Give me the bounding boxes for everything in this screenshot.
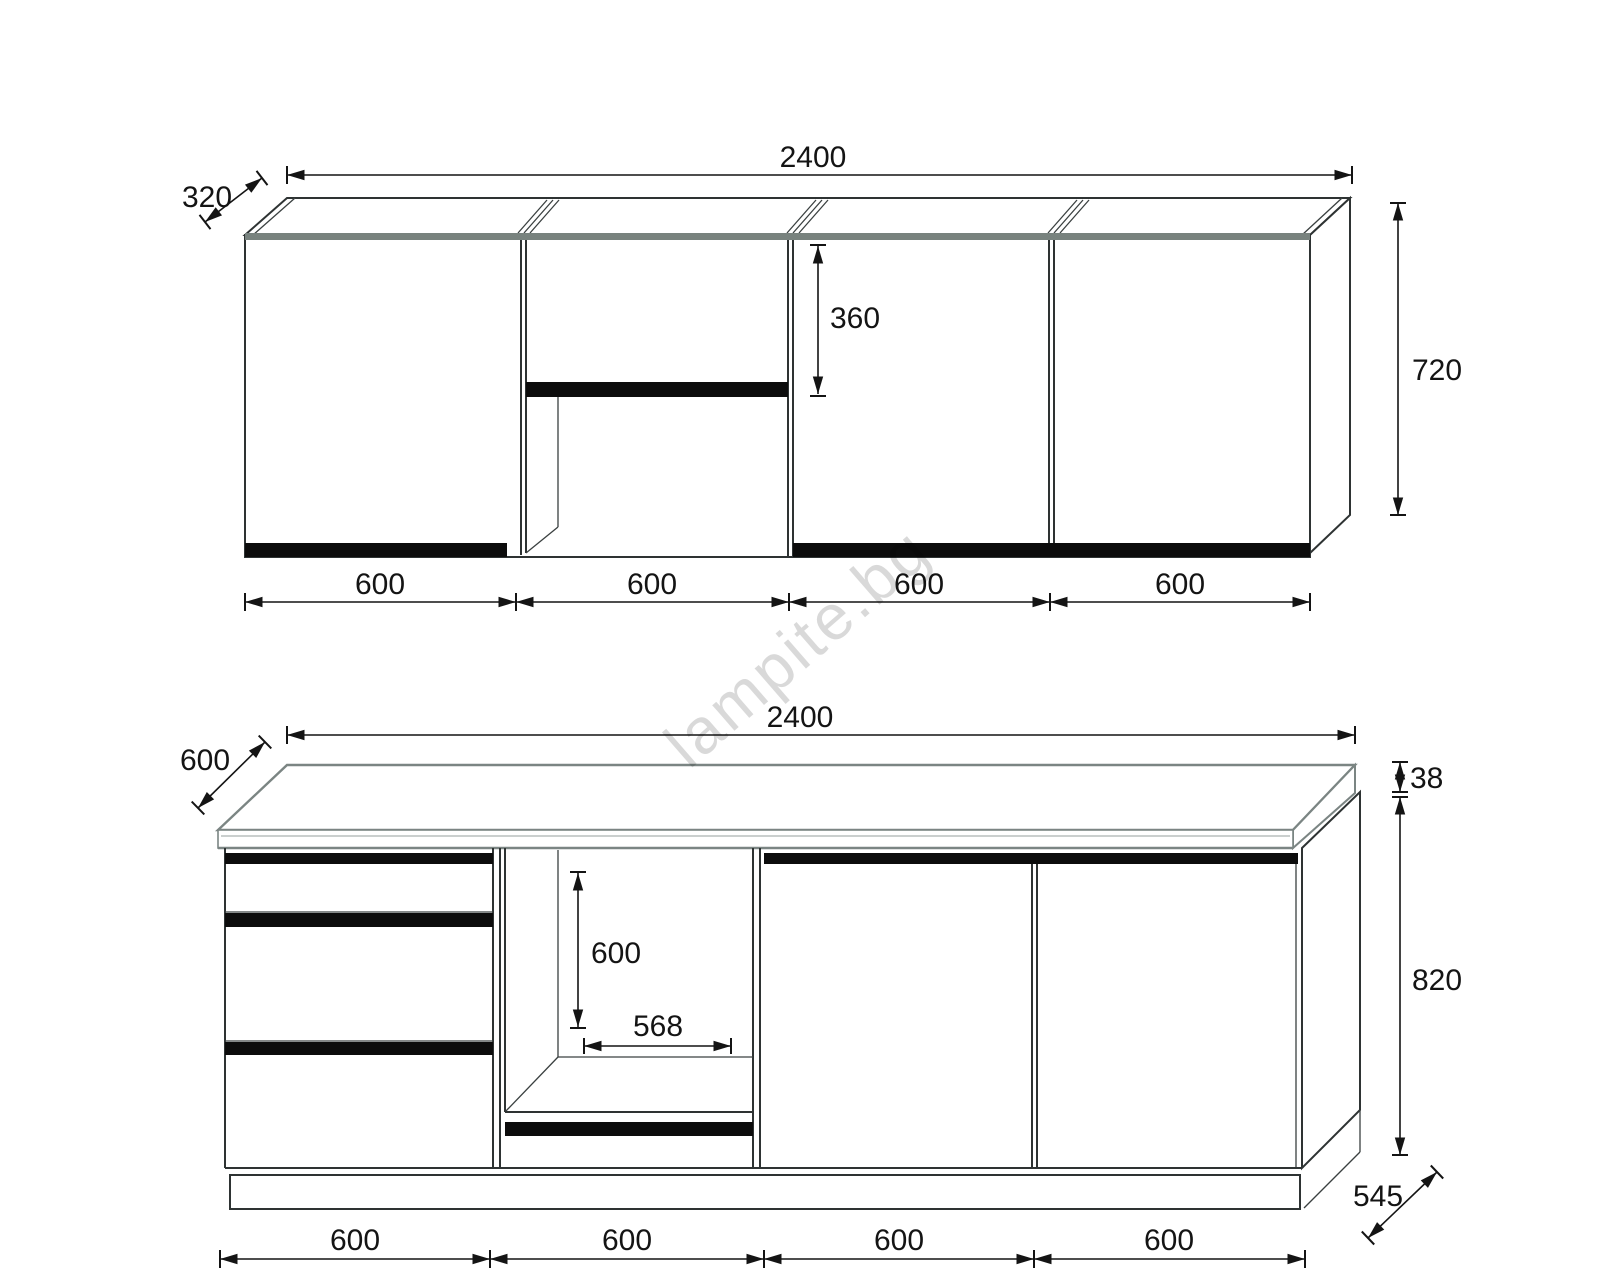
oven-niche <box>500 848 760 1168</box>
wall-cabinets-elevation: 2400 320 360 720 <box>182 141 1462 611</box>
wall-cabinet-top-edge-strip <box>245 233 1310 240</box>
niche-width-label: 568 <box>633 1010 683 1043</box>
technical-drawing-canvas: 2400 320 360 720 <box>0 0 1600 1280</box>
niche-floor-corner <box>505 1057 558 1112</box>
niche-height-dimension: 600 <box>570 872 641 1028</box>
kitchen-cabinet-dimension-drawing: 2400 320 360 720 <box>0 0 1600 1280</box>
door-top-rail-strip <box>764 853 1298 864</box>
wall-cabinet-bottom-strip-left <box>245 543 507 557</box>
lower-section-4-label: 600 <box>1144 1224 1194 1257</box>
wall-cabinet-top-face <box>245 198 1350 235</box>
upper-depth-dimension: 320 <box>182 171 268 229</box>
worktop-depth-label: 600 <box>180 744 230 777</box>
plinth-depth-dimension: 545 <box>1353 1166 1443 1245</box>
hood-opening-height-label: 360 <box>830 302 880 335</box>
worktop-thickness-dimension: 38 <box>1392 762 1443 795</box>
upper-height-label: 720 <box>1412 354 1462 387</box>
plinth-depth-label: 545 <box>1353 1180 1403 1213</box>
upper-height-dimension: 720 <box>1390 203 1462 515</box>
lower-height-label: 820 <box>1412 964 1462 997</box>
lower-height-dimension: 820 <box>1392 797 1462 1155</box>
lower-section-3-label: 600 <box>874 1224 924 1257</box>
drawer-1-handle-strip <box>225 853 493 864</box>
upper-width-label: 2400 <box>780 141 847 174</box>
upper-section-dimensions: 600 600 600 600 <box>245 568 1310 611</box>
upper-depth-label: 320 <box>182 181 232 214</box>
short-door-bottom-rail <box>526 382 788 397</box>
plinth-panel <box>230 1175 1300 1209</box>
niche-drawer-handle-strip <box>505 1122 753 1136</box>
upper-width-dimension: 2400 <box>287 141 1352 184</box>
base-cabinets-elevation: 2400 600 38 820 545 <box>180 701 1462 1268</box>
lower-width-dimension: 2400 <box>287 701 1355 744</box>
worktop-top-face <box>218 765 1355 830</box>
upper-section-2-label: 600 <box>627 568 677 601</box>
niche-width-dimension: 568 <box>584 1010 731 1054</box>
drawer-3-handle-strip <box>225 1042 493 1055</box>
lower-section-dimensions: 600 600 600 600 <box>220 1224 1305 1268</box>
drawer-2-handle-strip <box>225 913 493 927</box>
upper-section-1-label: 600 <box>355 568 405 601</box>
drawer-stack <box>225 848 493 1168</box>
base-cabinet-side-panel <box>1302 792 1360 1168</box>
upper-section-4-label: 600 <box>1155 568 1205 601</box>
niche-height-label: 600 <box>591 937 641 970</box>
lower-section-2-label: 600 <box>602 1224 652 1257</box>
door-section <box>764 853 1298 1168</box>
worktop-front-edge <box>218 830 1293 848</box>
worktop-thickness-label: 38 <box>1410 762 1443 795</box>
wall-cabinet-side-panel <box>1310 198 1350 553</box>
lower-section-1-label: 600 <box>330 1224 380 1257</box>
